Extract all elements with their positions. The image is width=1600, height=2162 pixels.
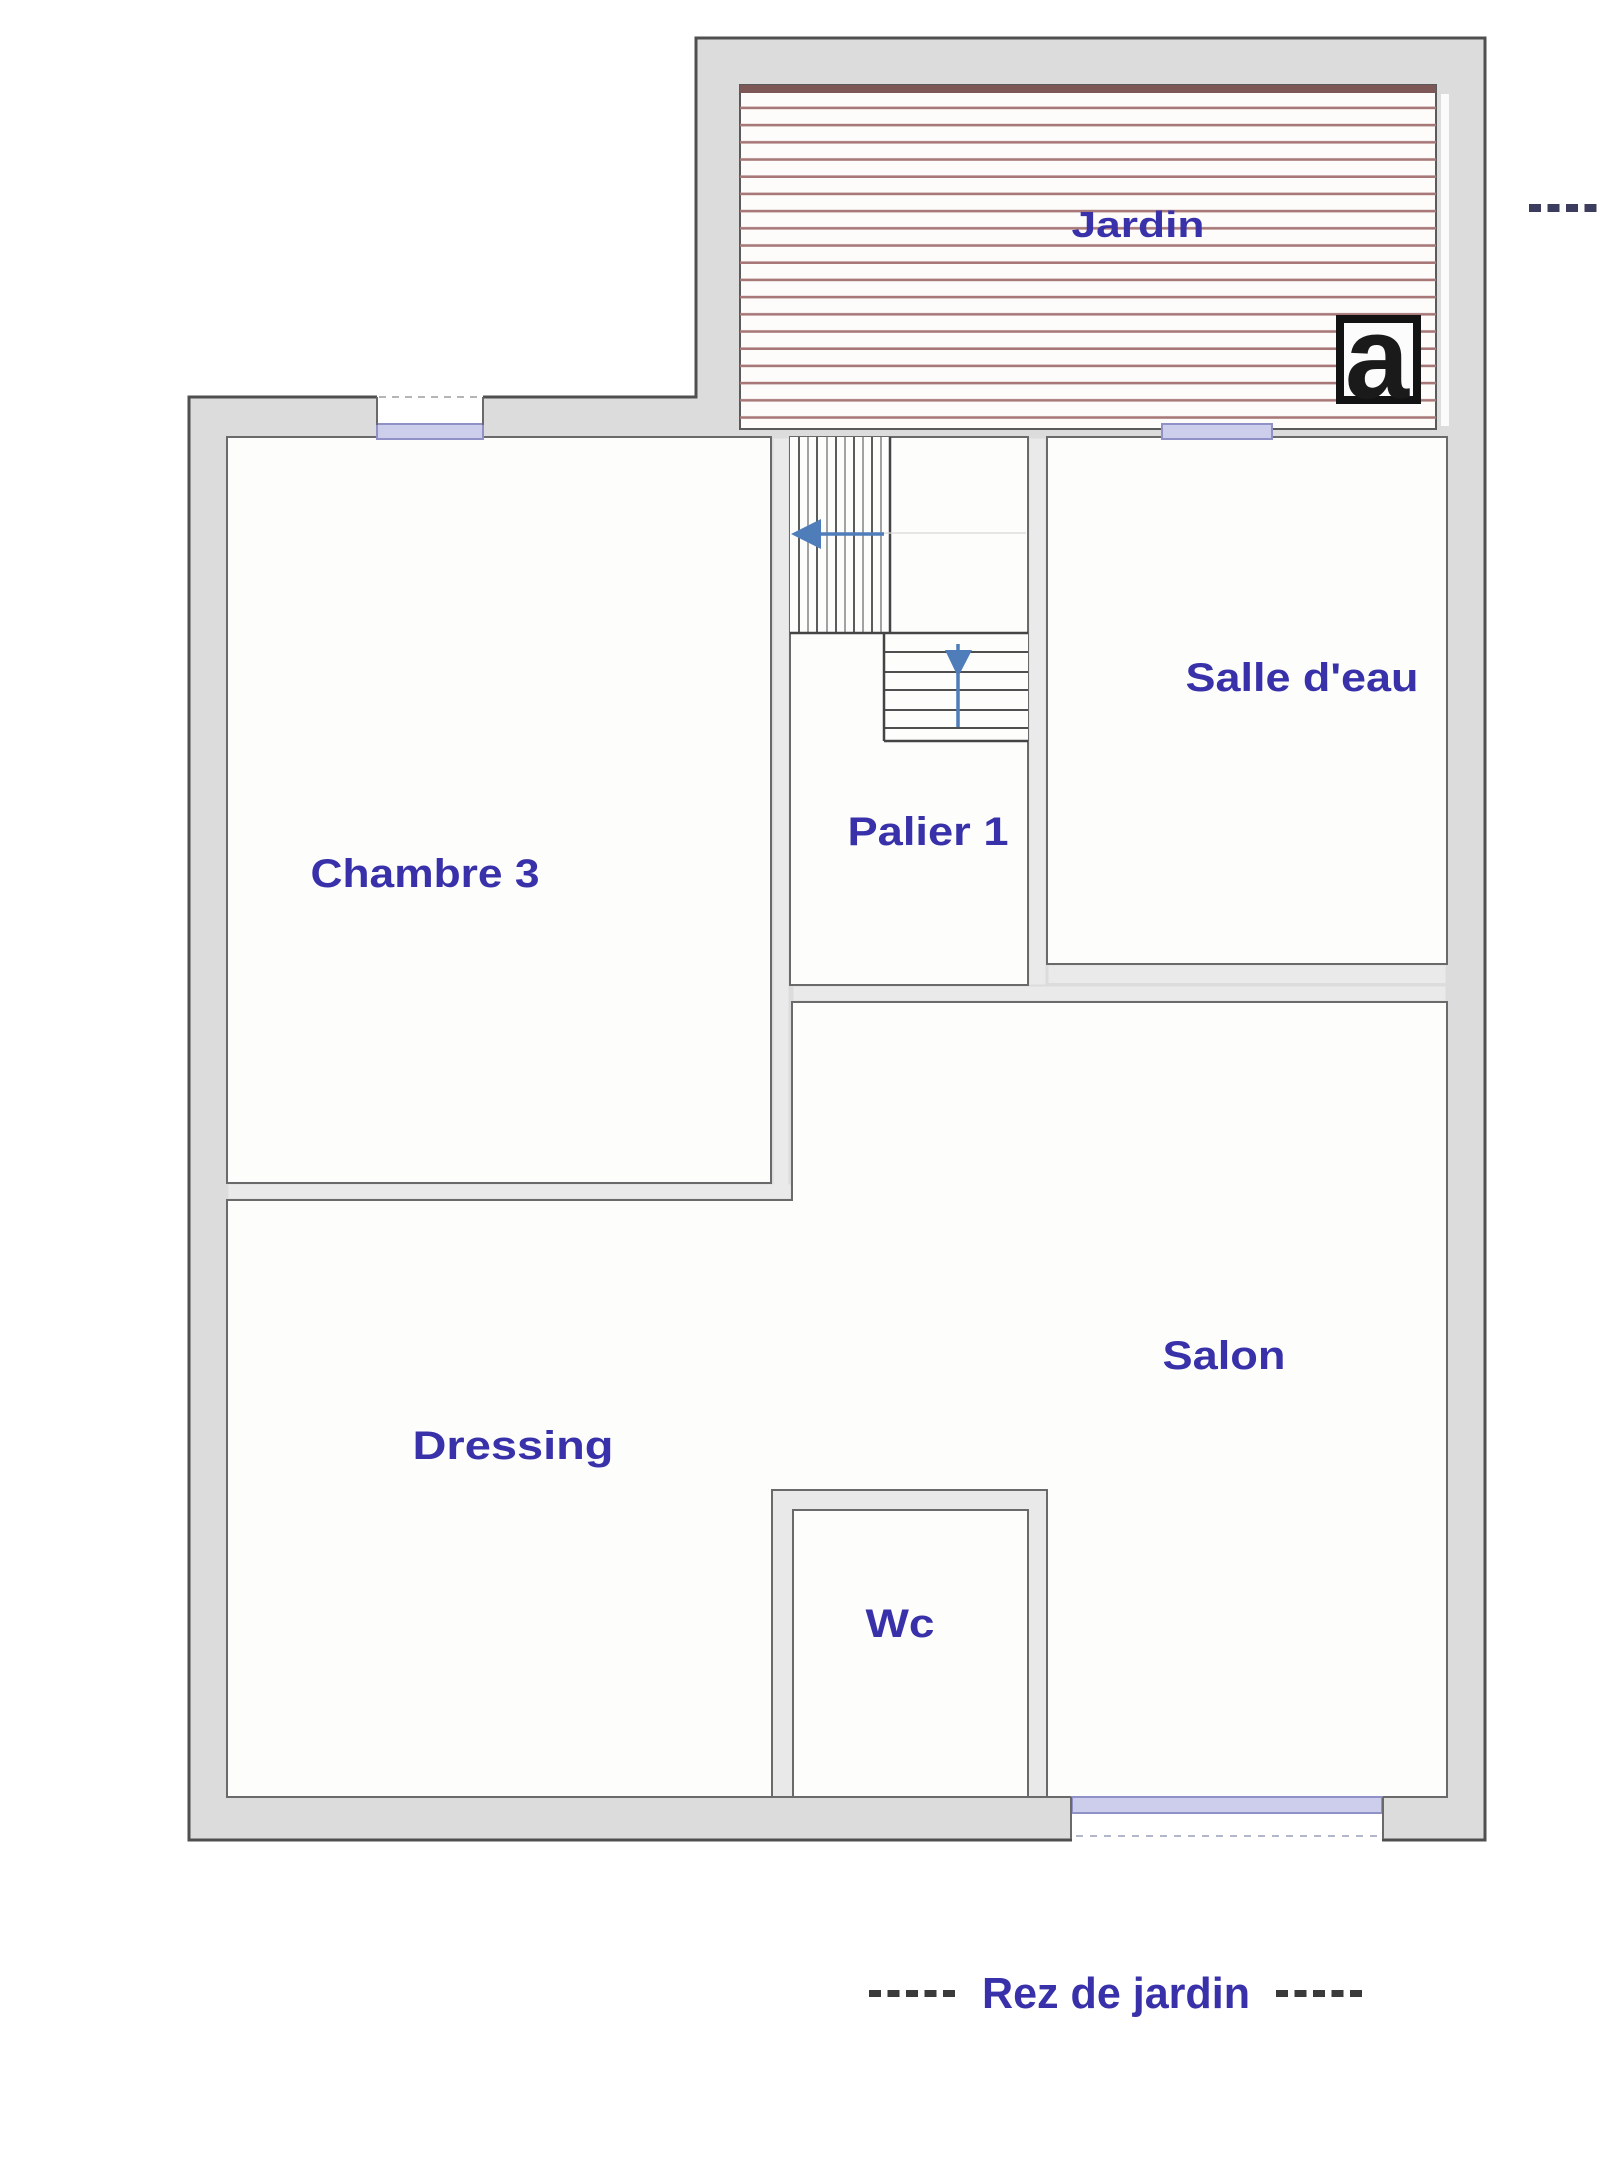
svg-text:Rez de jardin: Rez de jardin xyxy=(982,1969,1250,2018)
svg-text:a: a xyxy=(1345,292,1410,424)
svg-text:Palier 1: Palier 1 xyxy=(848,810,1009,854)
svg-text:Wc: Wc xyxy=(866,1602,935,1646)
svg-text:Jardin: Jardin xyxy=(1072,204,1205,245)
svg-text:Dressing: Dressing xyxy=(413,1424,614,1468)
svg-text:Salle d'eau: Salle d'eau xyxy=(1186,656,1419,700)
svg-text:Chambre 3: Chambre 3 xyxy=(311,852,540,896)
svg-text:Salon: Salon xyxy=(1163,1334,1286,1378)
